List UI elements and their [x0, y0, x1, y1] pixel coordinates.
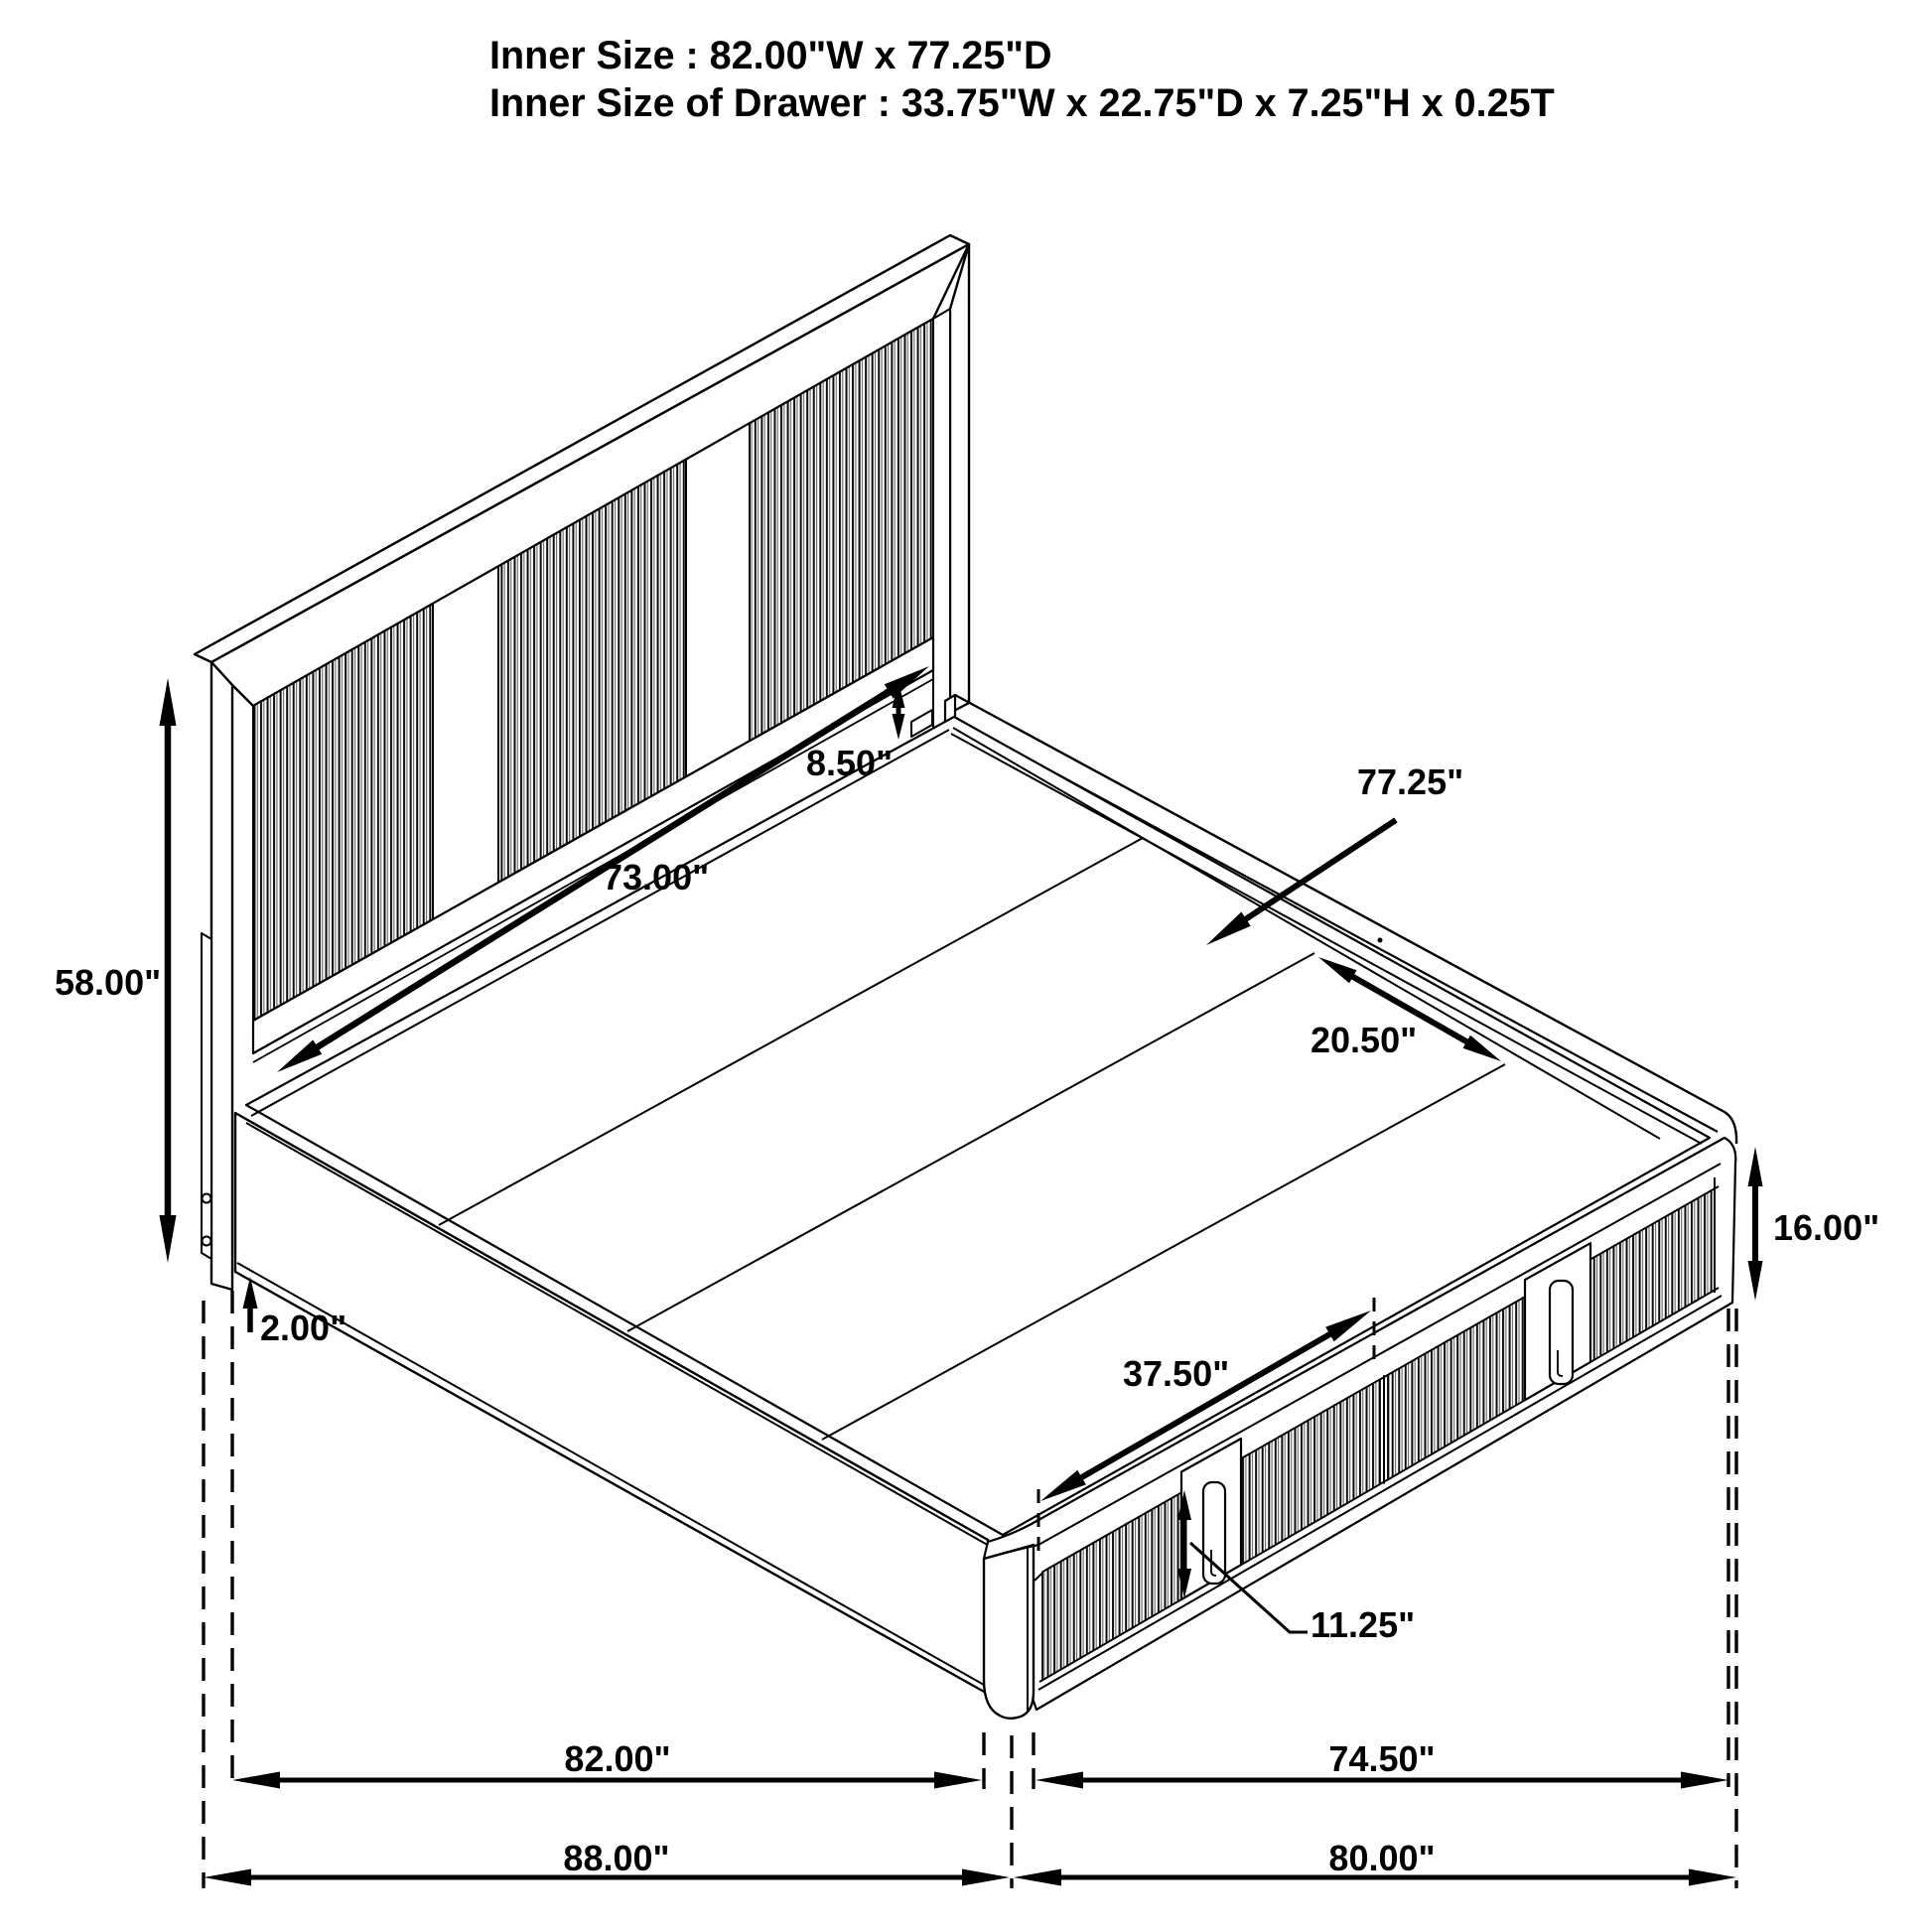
svg-text:82.00": 82.00" — [564, 1738, 670, 1779]
svg-text:37.50": 37.50" — [1123, 1353, 1229, 1394]
svg-text:73.00": 73.00" — [603, 857, 709, 897]
svg-text:Inner Size of Drawer : 33.75"W: Inner Size of Drawer : 33.75"W x 22.75"D… — [489, 81, 1555, 125]
svg-text:16.00": 16.00" — [1773, 1207, 1879, 1248]
svg-text:20.50": 20.50" — [1311, 1020, 1417, 1060]
svg-text:Inner Size : 82.00"W x 77.25"D: Inner Size : 82.00"W x 77.25"D — [489, 34, 1052, 77]
svg-text:80.00": 80.00" — [1328, 1838, 1435, 1878]
svg-text:8.50": 8.50" — [806, 743, 893, 783]
svg-text:11.25": 11.25" — [1311, 1604, 1415, 1645]
svg-text:58.00": 58.00" — [55, 962, 161, 1003]
svg-text:88.00": 88.00" — [563, 1838, 669, 1878]
svg-text:2.00": 2.00" — [260, 1308, 346, 1348]
svg-text:77.25": 77.25" — [1357, 761, 1463, 802]
svg-text:74.50": 74.50" — [1328, 1738, 1435, 1779]
